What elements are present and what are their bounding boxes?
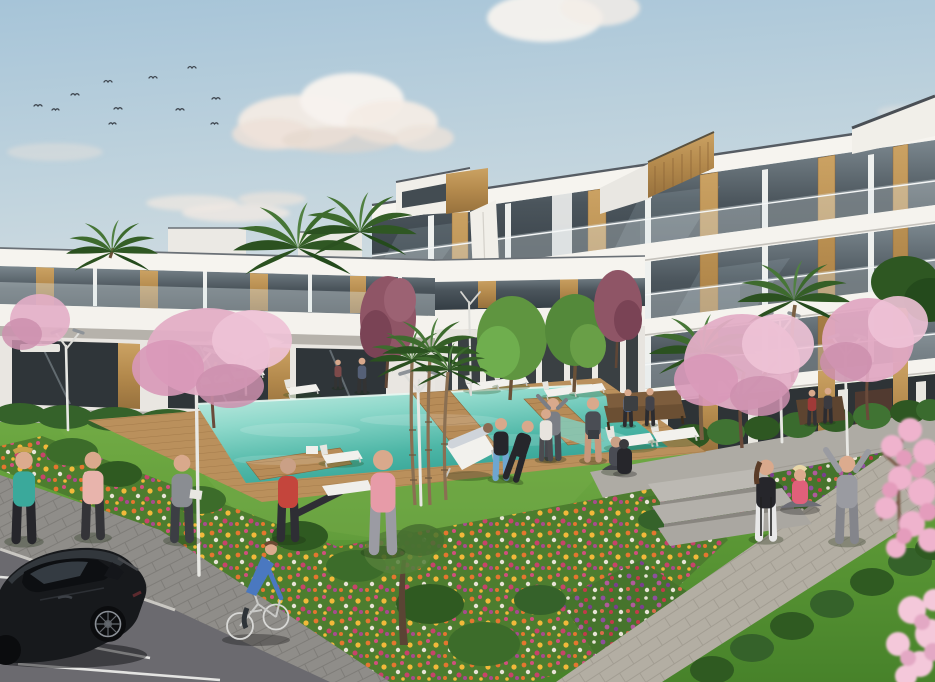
cyclist-legs (244, 608, 247, 628)
jogger-woman-hair (14, 449, 32, 452)
scene-canvas (0, 0, 935, 682)
architectural-render (0, 0, 935, 682)
planter-bin (624, 396, 638, 411)
parked-car (0, 548, 147, 668)
paper (189, 489, 202, 500)
side-table (306, 446, 318, 454)
